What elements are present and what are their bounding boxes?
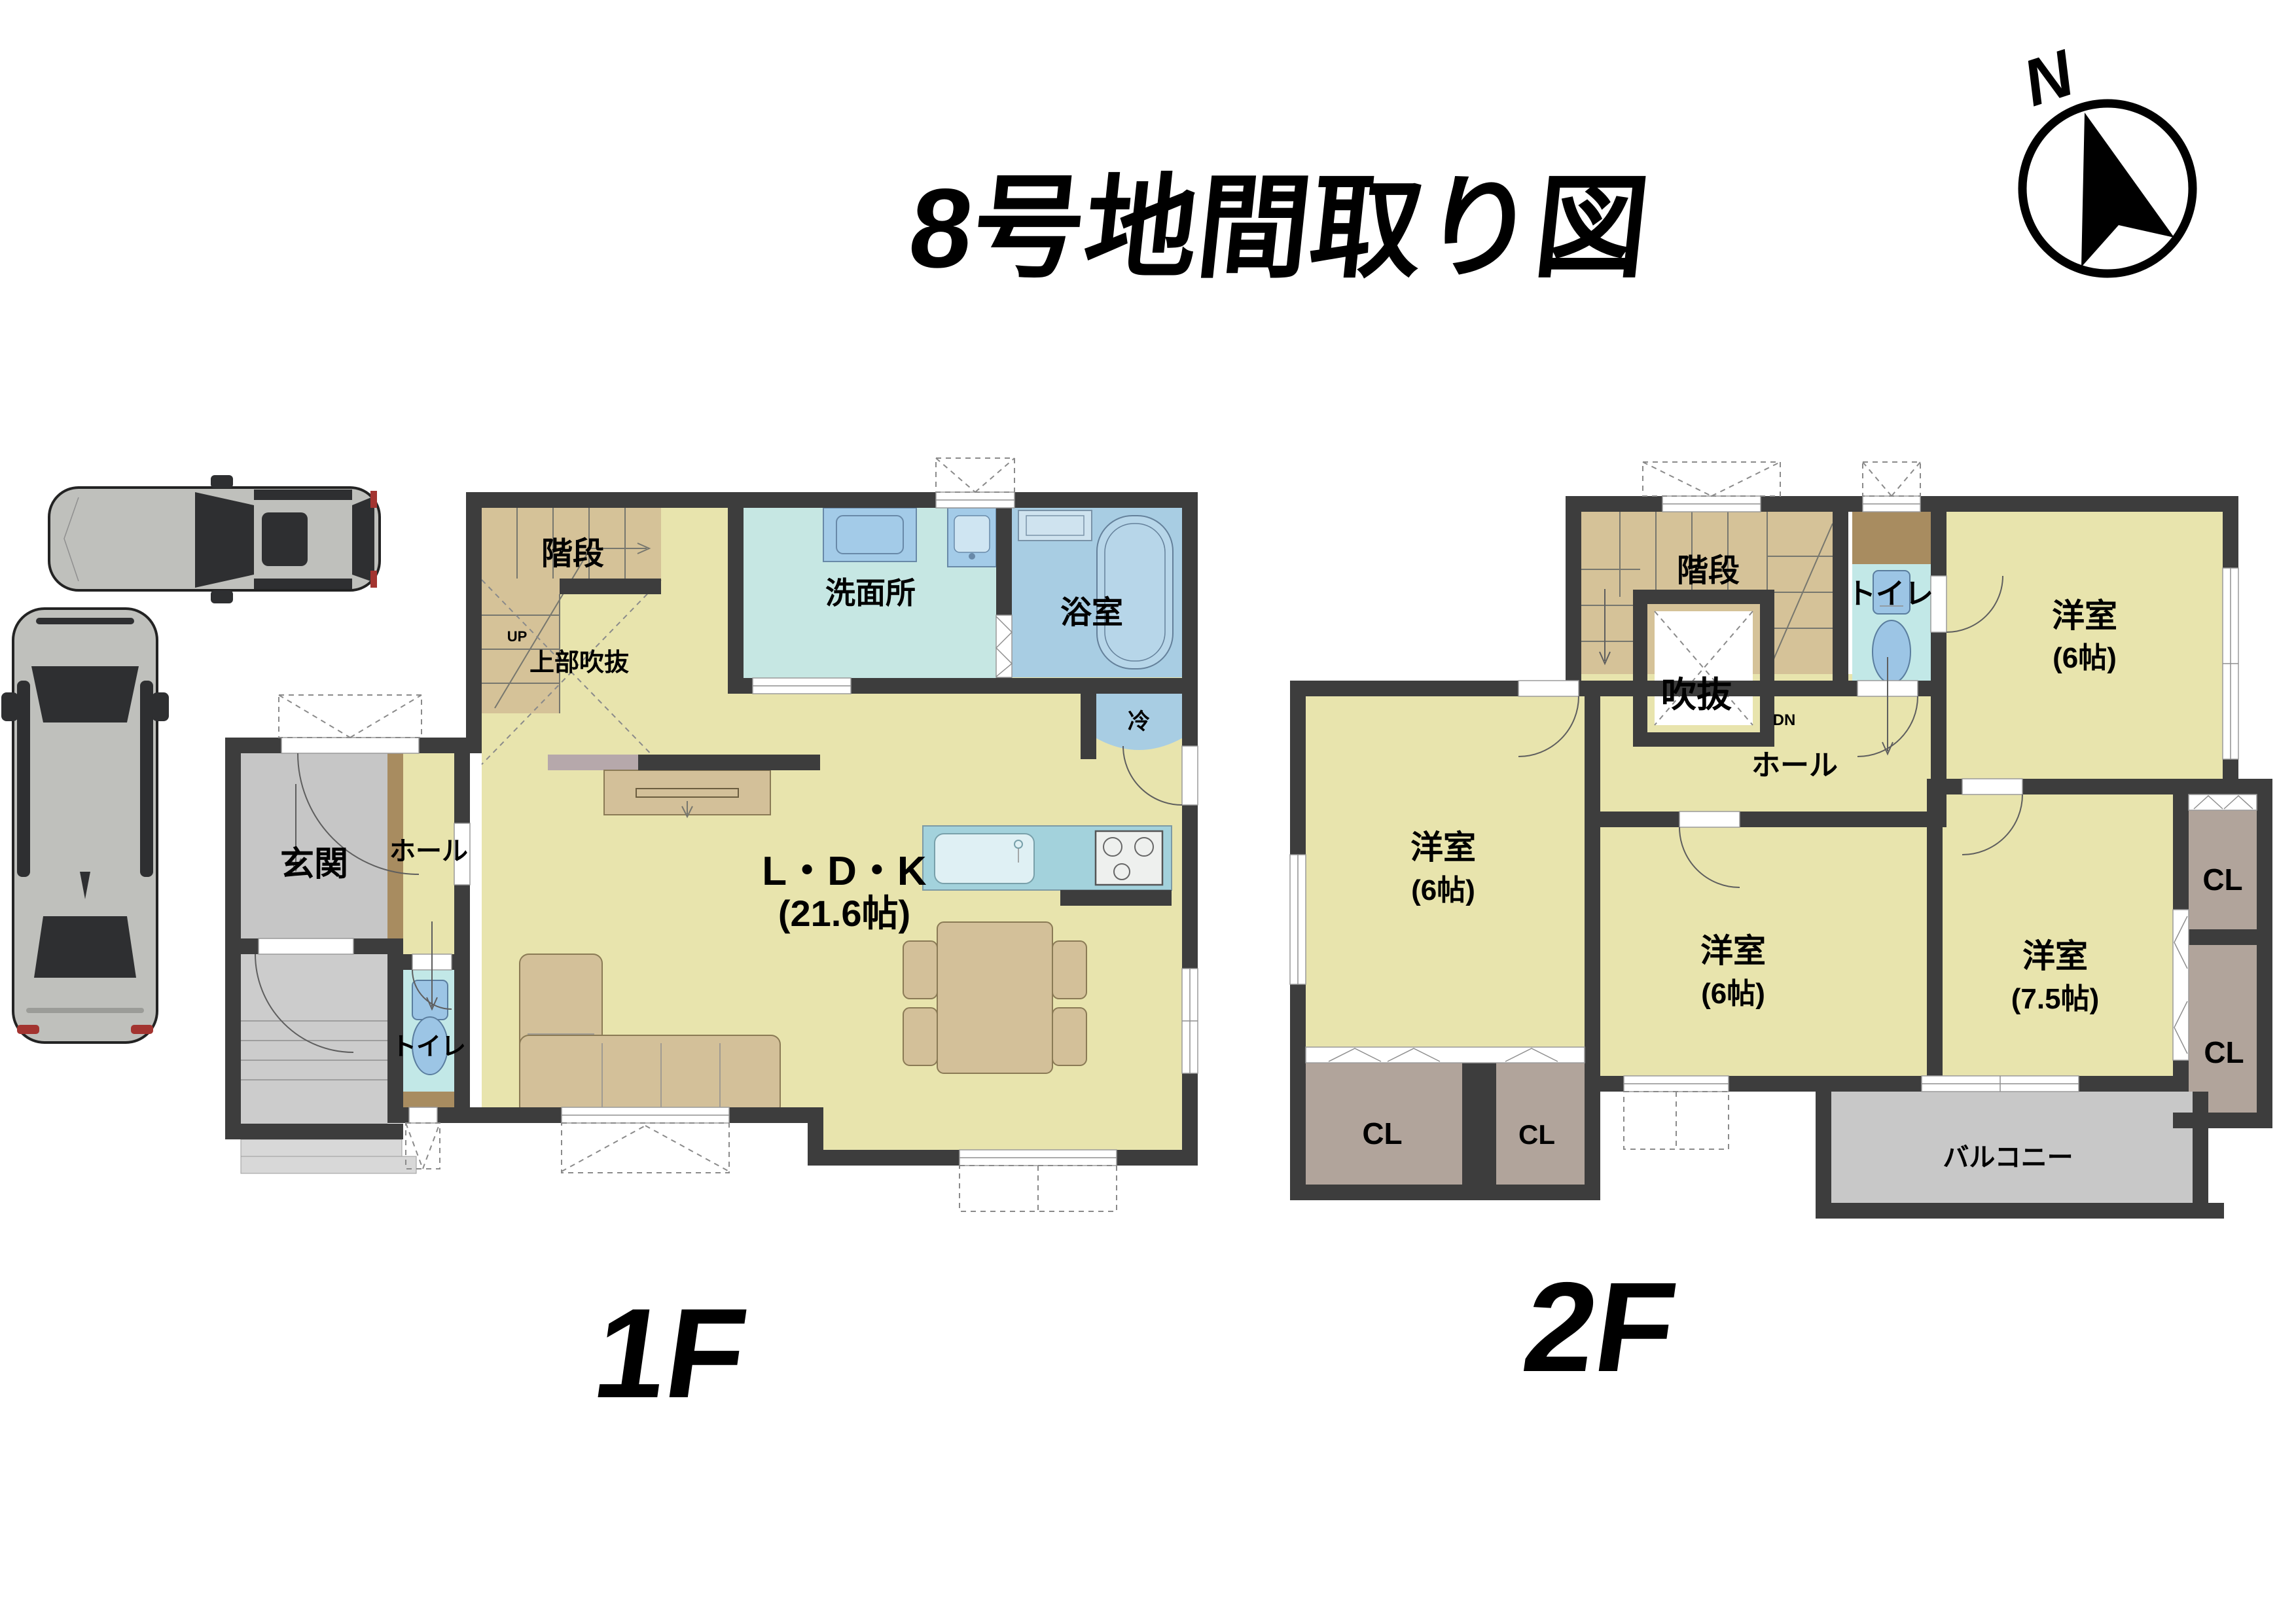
label-dn: DN — [1773, 711, 1796, 729]
label-closet-ne: CL — [2202, 863, 2242, 897]
label-bedroom-s: 洋室 — [1700, 933, 1766, 969]
label-bedroom-ne: 洋室 — [2052, 597, 2117, 634]
closet-e — [2189, 945, 2257, 1113]
genkan-inner-door — [259, 938, 353, 954]
page-title: 8号地間取り図 — [903, 165, 1655, 291]
chair-icon — [1052, 1008, 1086, 1065]
floor-plan-2f: 階段 吹抜 DN トイレ ホール 洋室 (6帖) 洋室 (6帖) 洋室 (6帖)… — [1290, 462, 2272, 1219]
chair-icon — [903, 1008, 937, 1065]
car-top-view-horizontal — [49, 475, 380, 603]
label-bedroom-s-size: (6帖) — [1701, 978, 1765, 1010]
label-toilet-1f: トイレ — [391, 1033, 466, 1061]
toilet-icon-1f — [412, 980, 448, 1020]
entrance-door — [281, 738, 419, 753]
label-genkan: 玄関 — [280, 846, 348, 883]
closet-ne-doors — [2189, 794, 2257, 810]
compass-north-label: N — [2015, 36, 2083, 120]
label-bedroom-se: 洋室 — [2022, 938, 2088, 974]
floor-label-2f: 2F — [1515, 1256, 1684, 1399]
label-balcony: バルコニー — [1943, 1143, 2073, 1172]
label-bath: 浴室 — [1060, 596, 1123, 630]
closet-w-doors — [1306, 1047, 1585, 1063]
room-bedroom-w — [1306, 696, 1585, 1047]
chair-icon — [1052, 941, 1086, 999]
label-toilet-2f: トイレ — [1847, 578, 1933, 610]
label-bedroom-w: 洋室 — [1410, 829, 1476, 866]
closet-e-doors — [2173, 910, 2189, 1060]
bedroom-w-door — [1518, 681, 1579, 696]
floor-plan-canvas: 8号地間取り図 N — [0, 0, 2296, 1623]
entry-step-2 — [241, 1156, 416, 1173]
label-void: 吹抜 — [1661, 675, 1732, 715]
label-stairs-2f: 階段 — [1677, 554, 1740, 588]
bedroom-s-door — [1679, 811, 1740, 827]
label-washroom: 洗面所 — [825, 576, 916, 610]
window — [409, 1107, 437, 1123]
shower-counter-icon — [1018, 510, 1092, 541]
label-hall-1f: ホール — [389, 837, 468, 866]
entry-step-1 — [241, 1139, 402, 1156]
toilet-cabinet-1f — [403, 1092, 454, 1107]
room-bedroom-se — [1943, 794, 2173, 1076]
compass-icon: N — [2015, 36, 2193, 274]
stove-icon — [1096, 831, 1162, 885]
chair-icon — [903, 941, 937, 999]
back-door — [1182, 746, 1198, 805]
label-fridge: 冷 — [1128, 709, 1150, 734]
label-ldk-size: (21.6帖) — [778, 893, 910, 934]
room-genkan-lower — [241, 954, 387, 1124]
label-closet-w1: CL — [1362, 1116, 1402, 1150]
label-closet-w2: CL — [1518, 1119, 1555, 1150]
label-stairs-1f: 階段 — [541, 537, 604, 571]
label-void-above: 上部吹抜 — [529, 649, 629, 677]
car-top-view-vertical — [1, 609, 169, 1043]
label-closet-e: CL — [2204, 1035, 2244, 1069]
label-ldk: L・D・K — [762, 849, 927, 894]
bedroom-se-door — [1962, 779, 2022, 794]
label-bedroom-se-size: (7.5帖) — [2011, 983, 2099, 1015]
label-hall-2f: ホール — [1751, 749, 1838, 781]
label-bedroom-ne-size: (6帖) — [2053, 642, 2117, 674]
tv-accent-wall — [548, 755, 638, 770]
label-up: UP — [507, 628, 528, 645]
label-bedroom-w-size: (6帖) — [1411, 874, 1475, 906]
dining-table-icon — [937, 922, 1052, 1073]
floor-label-1f: 1F — [586, 1282, 755, 1425]
toilet-cabinet-2f — [1852, 512, 1931, 564]
sink-icon — [935, 834, 1034, 883]
